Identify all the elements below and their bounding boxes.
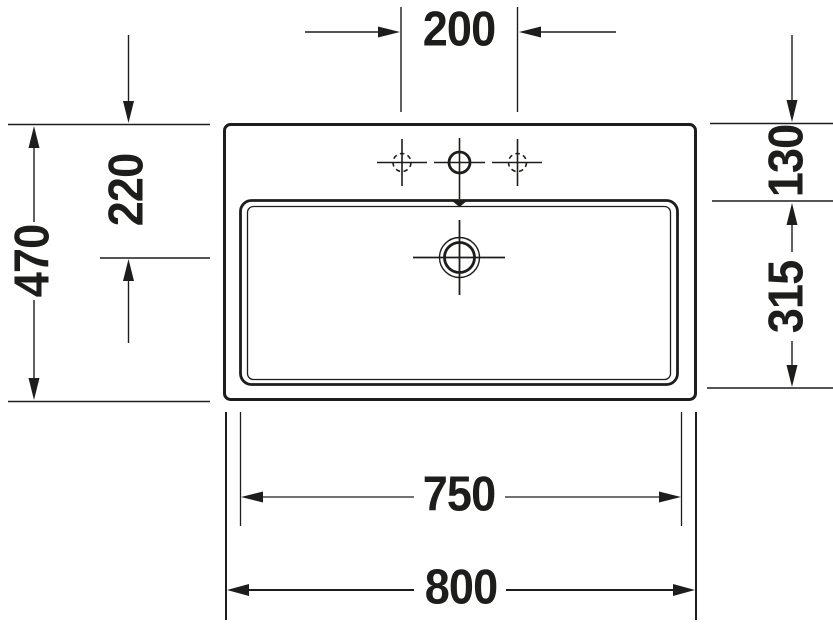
- faucet-hole-center-icon: [434, 138, 485, 199]
- washbasin-dimension-diagram: 200 470 220 130 315 750 800: [0, 0, 833, 625]
- dim-front-to-drain-label: 220: [103, 154, 152, 226]
- faucet-hole-right-icon: [492, 139, 542, 186]
- dim-130-315-lines: [787, 35, 798, 387]
- dim-faucet-spacing-label: 200: [423, 6, 495, 55]
- drain-icon: [413, 220, 505, 295]
- dim-rim-to-bowl-label: 130: [763, 125, 812, 197]
- faucet-holes: [377, 138, 542, 199]
- dim-bowl-depth-label: 315: [763, 261, 812, 333]
- faucet-hole-left-icon: [377, 139, 427, 186]
- dim-overall-width-label: 800: [425, 564, 497, 613]
- dim-bowl-width-label: 750: [423, 471, 495, 520]
- technical-drawing: [0, 0, 833, 625]
- dim-overall-depth-label: 470: [9, 225, 58, 297]
